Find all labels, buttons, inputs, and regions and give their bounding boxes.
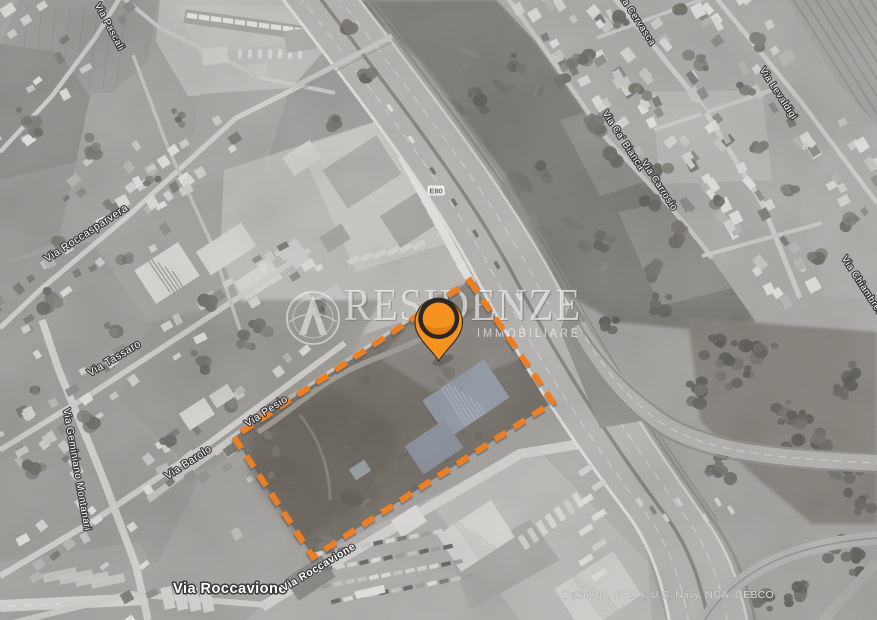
svg-text:IMMOBILIARE: IMMOBILIARE [477,328,581,340]
svg-text:Via Roccavione: Via Roccavione [173,581,287,597]
svg-text:Data SIO, NOAA, U.S. Navy, NGA: Data SIO, NOAA, U.S. Navy, NGA, GEBCO [563,589,774,601]
